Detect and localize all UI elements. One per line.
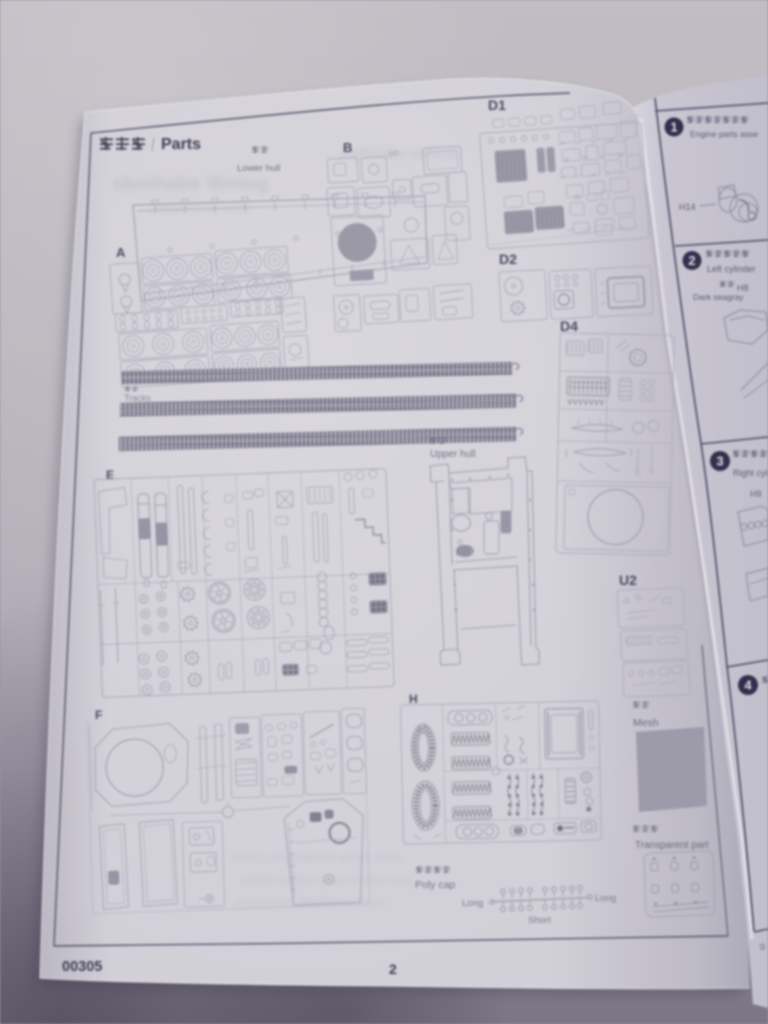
svg-text:Right cyl: Right cyl [733, 468, 768, 478]
svg-text:2: 2 [389, 961, 397, 977]
svg-text:sbnthabe lBnteg: sbnthabe lBnteg [112, 173, 269, 195]
svg-text:Upper hull: Upper hull [430, 449, 476, 460]
svg-text:H9: H9 [750, 489, 762, 499]
svg-text:D4: D4 [560, 318, 578, 334]
svg-text:D1: D1 [488, 97, 506, 113]
svg-text:1: 1 [670, 120, 677, 135]
svg-text:4: 4 [744, 678, 752, 693]
svg-text:Long: Long [462, 898, 483, 909]
svg-text:Lower hull: Lower hull [237, 163, 280, 174]
svg-text:Short: Short [528, 915, 551, 926]
svg-text:Tracks: Tracks [124, 393, 151, 403]
svg-text:Mesh: Mesh [633, 717, 659, 729]
svg-text:00305: 00305 [62, 959, 102, 975]
svg-text:Parts: Parts [161, 136, 201, 153]
svg-text:F: F [95, 708, 102, 722]
svg-text:H: H [409, 692, 418, 706]
svg-text:U2: U2 [619, 572, 637, 588]
svg-text:2: 2 [688, 253, 695, 268]
svg-text:Poly cap: Poly cap [415, 879, 455, 891]
svg-text:Left cylinder: Left cylinder [707, 264, 756, 274]
svg-text:0: 0 [760, 942, 765, 952]
svg-text:3: 3 [716, 454, 723, 469]
svg-text:A: A [116, 245, 126, 260]
svg-text:Dark seagray: Dark seagray [693, 292, 744, 302]
svg-text:D2: D2 [499, 251, 517, 267]
svg-text:E: E [106, 468, 114, 482]
svg-text:Transparent part: Transparent part [635, 840, 709, 851]
svg-text:red hcrud gnutielnA eid rhi nn: red hcrud gnutielnA eid rhi nnew [230, 851, 402, 865]
svg-text:H14: H14 [679, 202, 696, 212]
svg-text:Engine parts asse: Engine parts asse [690, 129, 758, 139]
svg-text:Long: Long [595, 893, 616, 904]
svg-text:B: B [343, 140, 352, 155]
svg-text:nehcam uz gitrefllohcs hcua: nehcam uz gitrefllohcs hcua [235, 895, 384, 909]
